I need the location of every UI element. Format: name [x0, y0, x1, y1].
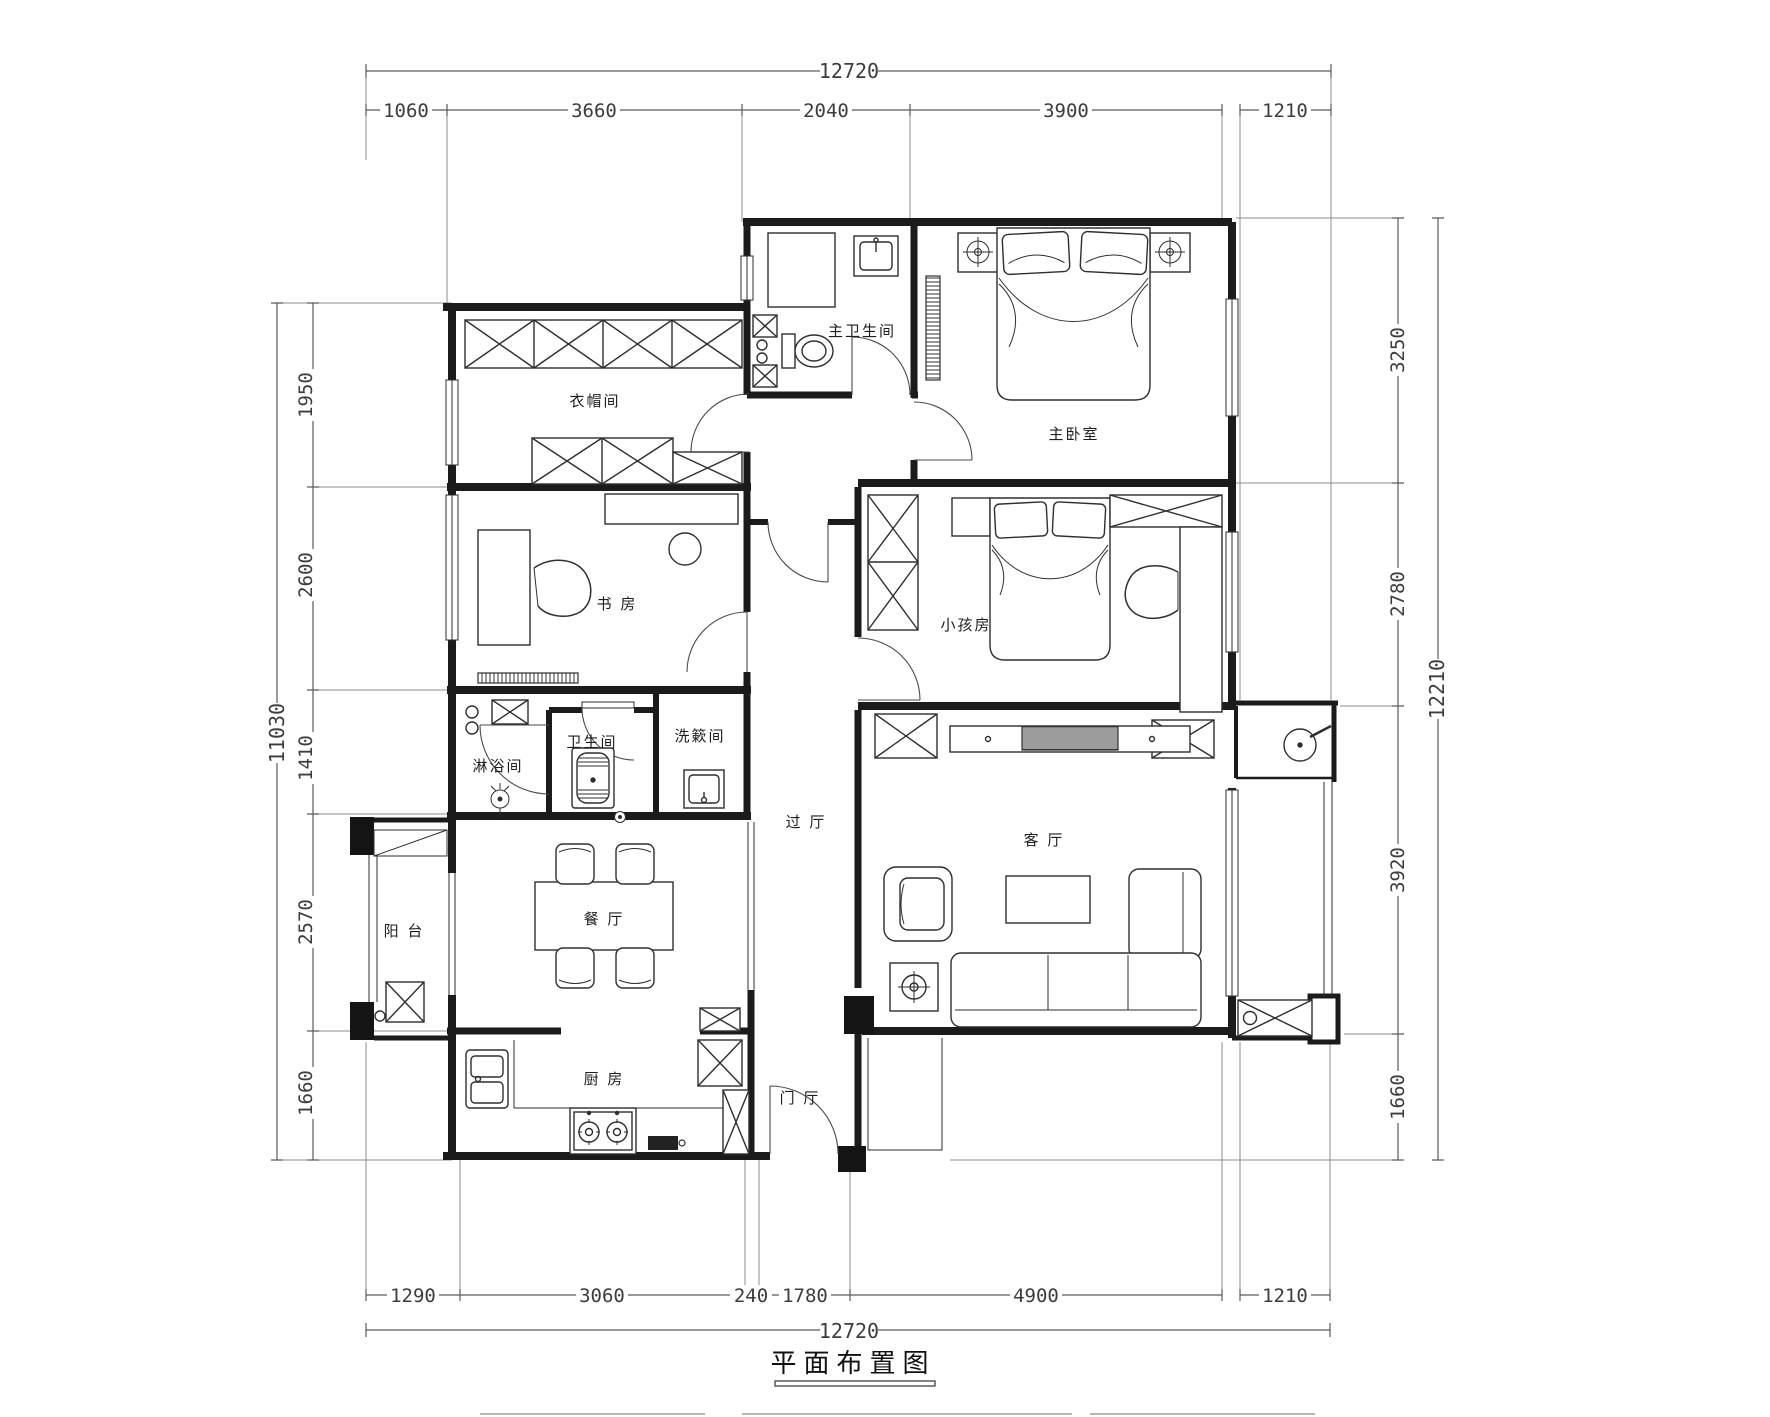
balcony-railing: [369, 855, 377, 1002]
label-kids-room: 小孩房: [940, 616, 991, 634]
label-living-room: 客 厅: [1024, 831, 1065, 849]
door-hallway: [768, 522, 828, 582]
balcony-sliding-door: [449, 873, 455, 995]
door-cloakroom: [691, 394, 749, 452]
label-hallway: 过 厅: [786, 813, 827, 831]
dim-right-4: 1660: [1387, 1074, 1409, 1120]
dim-left-total: 11030: [265, 703, 289, 763]
dim-left-5: 1660: [295, 1070, 317, 1116]
tv-wall: [875, 714, 1214, 758]
window-bath-block: [741, 256, 753, 300]
washing-machine: [375, 982, 424, 1022]
dim-bottom-6: 1210: [1262, 1285, 1308, 1307]
door-master-bedroom: [914, 402, 972, 460]
drawing-title: 平面布置图: [770, 1349, 935, 1386]
kids-bed: [990, 498, 1110, 660]
wardrobe-top: [465, 320, 742, 368]
study-stool: [669, 533, 701, 565]
valve: [615, 812, 626, 823]
dim-left-1: 1950: [295, 372, 317, 418]
balcony-rack: [374, 830, 447, 856]
window-master-bedroom: [1226, 299, 1238, 416]
dim-left-3: 1410: [295, 735, 317, 781]
shower-head: [491, 783, 509, 817]
tv: [1022, 727, 1118, 750]
label-cloakroom: 衣帽间: [569, 392, 620, 410]
wardrobe-bottom: [532, 438, 742, 484]
radiator-study: [478, 673, 578, 683]
window-study: [446, 495, 458, 640]
window-kids-room: [1226, 532, 1238, 652]
dim-top-1: 1060: [383, 100, 429, 122]
door-master-bathroom: [852, 337, 910, 395]
dim-top-4: 3900: [1043, 100, 1089, 122]
plumbing-shafts: [753, 315, 777, 387]
kitchen-appliance: [648, 1136, 685, 1150]
door-study: [687, 612, 747, 672]
dim-top-2: 3660: [571, 100, 617, 122]
master-bed: [997, 228, 1150, 400]
right-balcony-railing: [1324, 782, 1332, 996]
dim-right-total: 12210: [1425, 659, 1449, 719]
label-study: 书 房: [597, 595, 638, 613]
floor-plan-svg: 12720 1060 3660 2040 3900 1210 1290 3060…: [0, 0, 1770, 1417]
label-bathroom: 卫生间: [566, 733, 617, 751]
dim-bottom-1: 1290: [390, 1285, 436, 1307]
title-text: 平面布置图: [770, 1349, 935, 1379]
label-laundry-room: 洗簌间: [674, 727, 725, 745]
label-balcony: 阳 台: [384, 922, 425, 940]
dim-right-3: 3920: [1387, 847, 1409, 893]
right-balcony-cabinet: [1238, 1000, 1312, 1036]
radiator-master: [926, 276, 940, 380]
dim-top-5: 1210: [1262, 100, 1308, 122]
dim-left-2: 2600: [295, 552, 317, 598]
dim-top-3: 2040: [803, 100, 849, 122]
dim-bottom-5: 4900: [1013, 1285, 1059, 1307]
window-cloakroom: [446, 380, 458, 465]
study-chair: [534, 560, 591, 616]
dim-top-total: 12720: [819, 59, 879, 83]
entry-niche: [868, 1038, 942, 1150]
dim-bottom-4: 1780: [782, 1285, 828, 1307]
dim-bottom-3: 240: [734, 1285, 768, 1307]
dim-left-4: 2570: [295, 899, 317, 945]
bottom-edge-marks: [480, 1413, 1315, 1415]
kids-desk: [1180, 527, 1222, 712]
label-master-bathroom: 主卫生间: [828, 322, 896, 340]
label-kitchen: 厨 房: [584, 1070, 625, 1088]
laundry-sink: [684, 770, 724, 808]
shower-nook: [466, 700, 528, 734]
label-master-bedroom: 主卧室: [1048, 425, 1099, 443]
shower-stall: [768, 233, 835, 307]
dim-bottom-2: 3060: [579, 1285, 625, 1307]
kids-nightstand: [952, 498, 990, 536]
dim-right-2: 2780: [1387, 571, 1409, 617]
door-kids-room: [858, 638, 920, 700]
kitchen-sink: [466, 1050, 508, 1108]
armchair: [884, 867, 952, 941]
bathtub: [572, 748, 614, 808]
label-dining-room: 餐 厅: [584, 910, 625, 928]
stove: [570, 1108, 636, 1154]
bath-sink: [854, 236, 898, 276]
coffee-table: [1006, 876, 1090, 923]
window-living-room: [1226, 790, 1238, 996]
kids-top-wardrobe: [1110, 495, 1222, 527]
sofa-side-table: [890, 963, 938, 1011]
study-desk: [478, 530, 530, 645]
toilet: [782, 334, 833, 368]
basin: [1284, 726, 1331, 761]
dim-bottom-total: 12720: [819, 1319, 879, 1343]
title-underline: [775, 1381, 935, 1386]
floor-plan-page: 12720 1060 3660 2040 3900 1210 1290 3060…: [0, 0, 1770, 1417]
kids-chair: [1125, 566, 1178, 619]
kids-wardrobe: [868, 495, 918, 630]
label-foyer: 门 厅: [780, 1089, 821, 1107]
dim-right-1: 3250: [1387, 327, 1409, 373]
label-shower-room: 淋浴间: [472, 757, 523, 775]
study-shelf: [605, 494, 738, 524]
